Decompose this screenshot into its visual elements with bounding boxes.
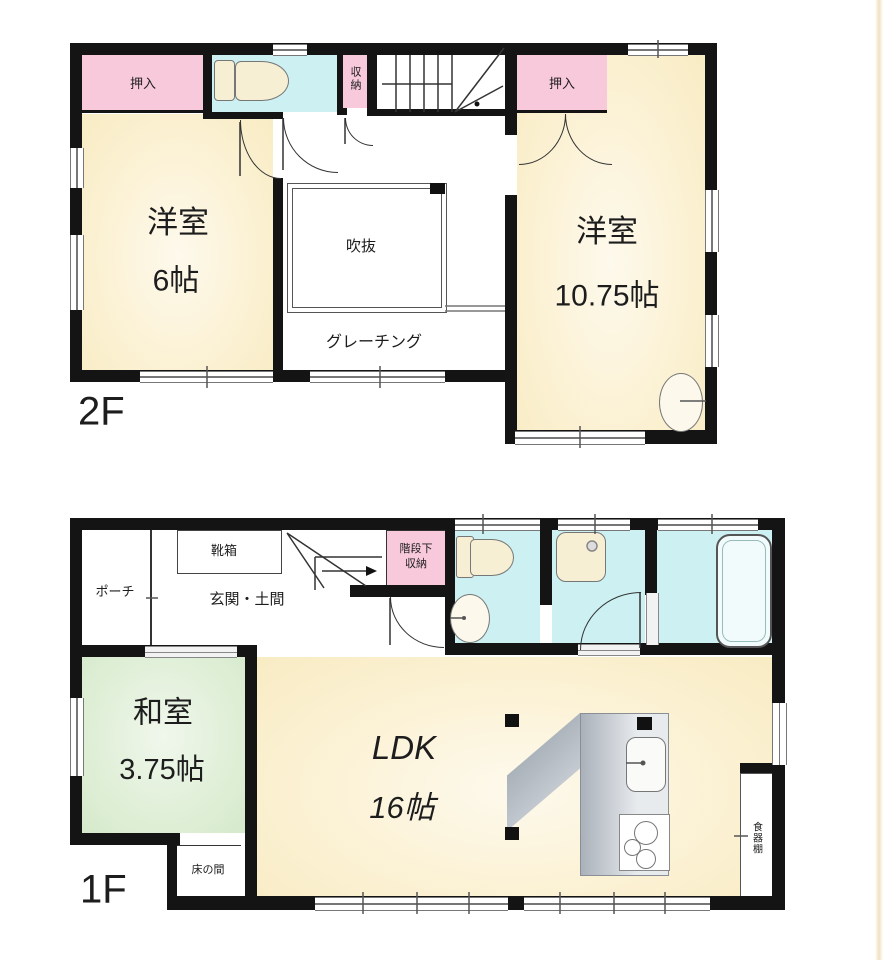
bathtub-inner <box>722 540 766 642</box>
floor-plan: 押入 収納 押入 洋室 6帖 吹抜 グレーチング 洋室 10.75帖 2F <box>0 0 886 960</box>
wall <box>505 43 517 135</box>
shoe-cabinet-label: 靴箱 <box>211 544 237 558</box>
room-west-name: 洋室 <box>147 206 209 240</box>
basin-icon <box>450 594 490 643</box>
closet-right-label: 押入 <box>549 77 575 91</box>
wall <box>540 518 552 605</box>
understairs-label-2: 収納 <box>405 558 427 570</box>
counter-post <box>505 827 519 840</box>
void-corner-post <box>430 183 445 194</box>
wall <box>350 585 450 597</box>
wall <box>337 44 343 114</box>
cupboard-label: 食器棚 <box>751 822 762 855</box>
door-arc-storage-2f <box>345 118 373 146</box>
wall <box>70 833 180 845</box>
window <box>524 897 710 911</box>
wall <box>70 43 82 382</box>
wall <box>645 518 657 595</box>
stairs-1f <box>287 533 382 590</box>
ldk-name: LDK <box>372 730 436 766</box>
tokonoma-label: 床の間 <box>192 864 225 876</box>
wall <box>203 112 283 119</box>
window <box>70 698 84 776</box>
floor2-label: 2F <box>78 390 125 435</box>
door-arc-ldk-entry <box>390 597 444 648</box>
window <box>455 519 540 531</box>
wall <box>337 108 347 115</box>
sink-icon-2f <box>659 373 703 432</box>
wall <box>367 44 377 116</box>
sliding-door <box>646 593 659 645</box>
wall <box>70 518 82 845</box>
void-label: 吹抜 <box>346 239 376 256</box>
toilet-tank-icon <box>214 60 235 101</box>
window <box>558 519 630 531</box>
wall <box>70 43 717 55</box>
wall <box>505 195 517 442</box>
wall <box>273 178 283 372</box>
kitchen-sink-icon <box>626 737 666 792</box>
toilet-bowl-icon <box>235 61 289 101</box>
japanese-room-floor <box>82 657 245 833</box>
porch-label: ポーチ <box>95 585 134 599</box>
understairs-label-1: 階段下 <box>400 543 433 555</box>
burner-icon <box>636 849 656 869</box>
room-west-size: 6帖 <box>153 265 200 298</box>
window <box>705 190 719 252</box>
window <box>273 44 307 56</box>
void-extension-lines <box>445 306 505 311</box>
window <box>140 371 273 383</box>
window <box>658 519 758 531</box>
storage-label: 収納 <box>349 66 361 92</box>
window <box>705 315 719 367</box>
floor1-label: 1F <box>80 868 127 913</box>
door-arc-toilet-2f <box>283 118 338 173</box>
washing-machine-icon <box>556 532 606 582</box>
ldk-size: 16帖 <box>369 791 434 825</box>
stove-icon <box>619 814 670 871</box>
window <box>315 897 508 911</box>
sliding-door <box>145 646 237 658</box>
window <box>70 148 84 188</box>
window <box>772 703 787 765</box>
window <box>628 44 688 56</box>
japanese-room-name: 和室 <box>133 697 193 730</box>
window <box>310 371 445 383</box>
closet-left-label: 押入 <box>130 77 156 91</box>
bathtub-icon <box>716 534 772 648</box>
scan-edge <box>875 0 883 960</box>
wall <box>203 43 212 118</box>
stairs-2f <box>382 48 504 112</box>
grating-label: グレーチング <box>326 334 422 352</box>
room-west-2f-floor <box>82 114 273 372</box>
entrance-label: 玄関・土間 <box>209 592 284 609</box>
wall <box>245 645 257 898</box>
wall <box>377 109 505 116</box>
room-east-size: 10.75帖 <box>554 280 659 313</box>
window <box>515 431 645 445</box>
counter-post <box>637 717 652 730</box>
counter-post <box>505 714 519 727</box>
wall <box>70 370 515 382</box>
window <box>70 235 84 310</box>
toilet-bowl-icon <box>470 539 514 576</box>
room-east-name: 洋室 <box>576 215 638 249</box>
japanese-room-size: 3.75帖 <box>119 755 204 787</box>
